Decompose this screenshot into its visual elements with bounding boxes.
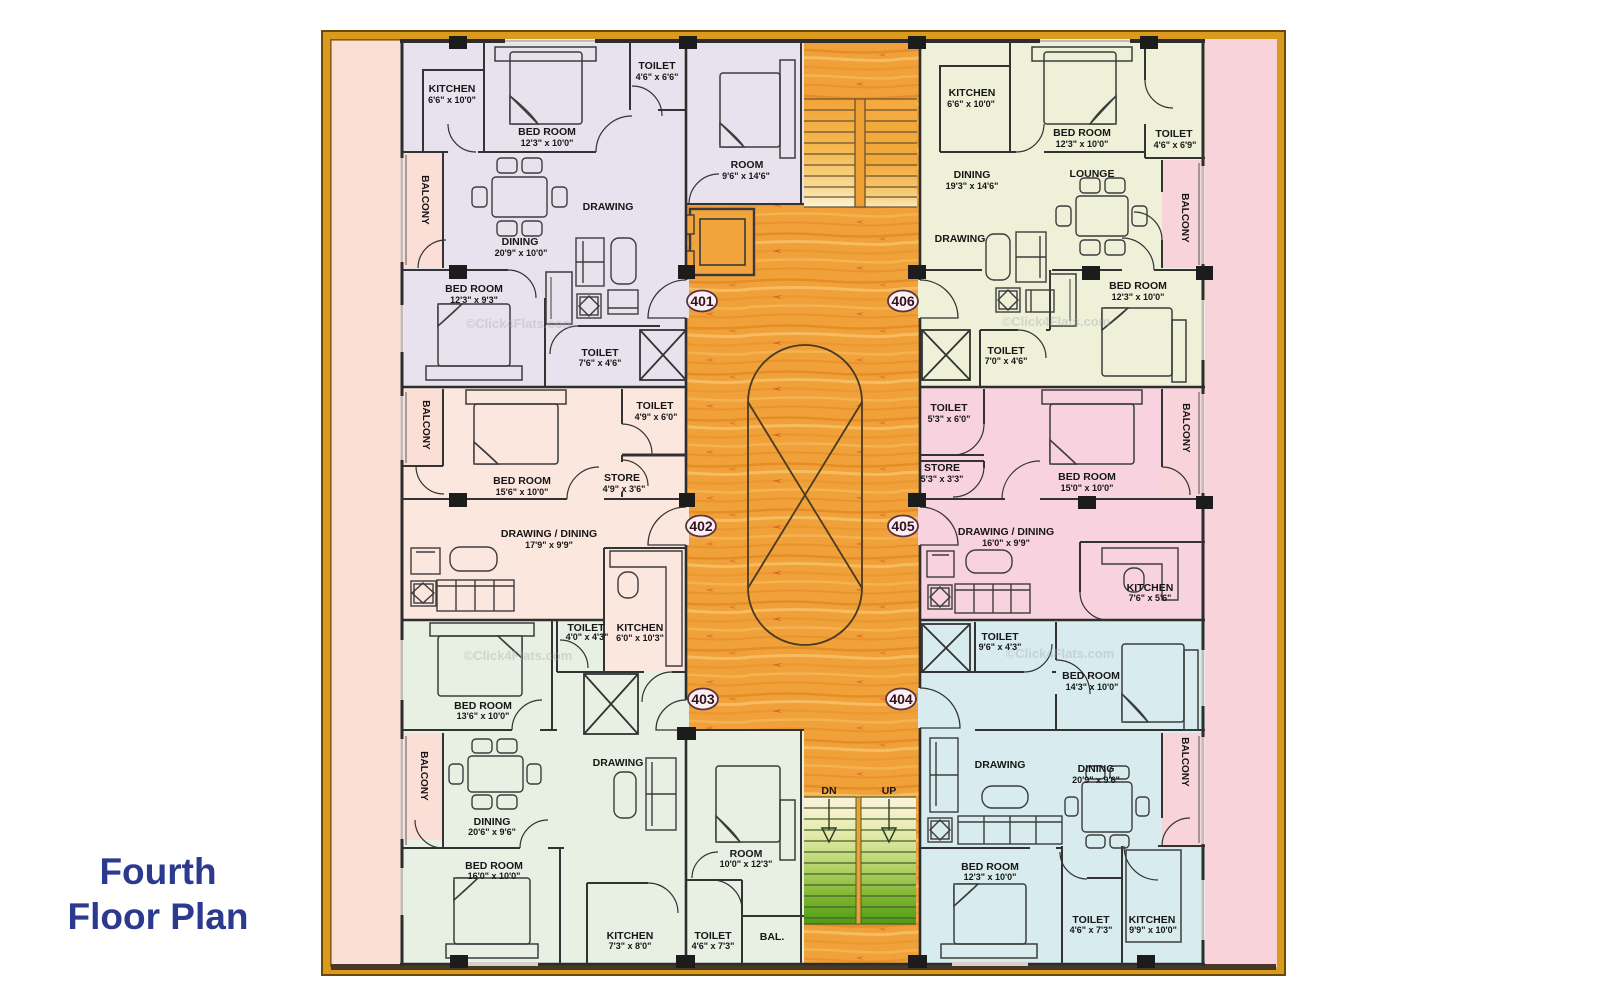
svg-text:7'6" x 5'6": 7'6" x 5'6" [1129,593,1172,603]
svg-text:4'6" x 6'6": 4'6" x 6'6" [636,72,679,82]
svg-text:20'9" x 9'6": 20'9" x 9'6" [1072,775,1120,785]
svg-text:12'3" x 9'3": 12'3" x 9'3" [450,295,498,305]
svg-text:6'0" x 10'3": 6'0" x 10'3" [616,633,664,643]
svg-text:405: 405 [891,518,915,534]
svg-text:DINING: DINING [502,236,539,248]
svg-text:7'0" x 4'6": 7'0" x 4'6" [985,356,1028,366]
svg-text:15'6" x 10'0": 15'6" x 10'0" [496,487,549,497]
svg-text:Floor Plan: Floor Plan [68,896,249,937]
svg-text:BED ROOM: BED ROOM [1053,127,1111,139]
svg-text:TOILET: TOILET [930,402,968,414]
svg-text:Fourth: Fourth [99,851,216,892]
svg-text:5'3" x 3'3": 5'3" x 3'3" [921,474,964,484]
svg-text:4'9" x 6'0": 4'9" x 6'0" [635,412,678,422]
svg-text:BED ROOM: BED ROOM [1058,471,1116,483]
svg-text:4'9" x 3'6": 4'9" x 3'6" [603,484,646,494]
svg-text:DINING: DINING [1078,763,1115,775]
svg-text:403: 403 [691,691,715,707]
svg-text:©Click4Flats.com: ©Click4Flats.com [464,648,573,663]
svg-text:STORE: STORE [924,462,960,474]
svg-text:DRAWING: DRAWING [583,201,634,213]
svg-text:BALCONY: BALCONY [419,175,430,225]
svg-text:DRAWING / DINING: DRAWING / DINING [958,526,1054,538]
svg-text:15'0" x 10'0": 15'0" x 10'0" [1061,483,1114,493]
svg-text:7'3" x 8'0": 7'3" x 8'0" [609,941,652,951]
svg-text:16'0" x 10'0": 16'0" x 10'0" [468,871,521,881]
svg-text:10'0" x 12'3": 10'0" x 12'3" [720,859,773,869]
svg-text:BED ROOM: BED ROOM [1062,670,1120,682]
svg-text:TOILET: TOILET [636,400,674,412]
svg-text:402: 402 [689,518,713,534]
svg-text:BED ROOM: BED ROOM [1109,280,1167,292]
svg-text:9'9" x 10'0": 9'9" x 10'0" [1129,925,1177,935]
svg-text:TOILET: TOILET [638,60,676,72]
svg-text:KITCHEN: KITCHEN [949,87,996,99]
svg-text:UP: UP [882,785,897,797]
svg-text:DRAWING: DRAWING [975,759,1026,771]
svg-text:4'0" x 4'3": 4'0" x 4'3" [566,632,609,642]
svg-text:TOILET: TOILET [1155,128,1193,140]
svg-text:401: 401 [690,293,714,309]
svg-text:12'3" x 10'0": 12'3" x 10'0" [1112,292,1165,302]
svg-text:BALCONY: BALCONY [1180,403,1191,453]
svg-text:20'9" x 10'0": 20'9" x 10'0" [495,248,548,258]
svg-text:STORE: STORE [604,472,640,484]
svg-text:19'3" x 14'6": 19'3" x 14'6" [946,181,999,191]
svg-text:©Click4Flats.com: ©Click4Flats.com [1006,646,1115,661]
svg-text:BALCONY: BALCONY [418,751,429,801]
svg-text:14'3" x 10'0": 14'3" x 10'0" [1066,682,1119,692]
svg-text:7'6" x 4'6": 7'6" x 4'6" [579,358,622,368]
svg-text:404: 404 [889,691,913,707]
svg-text:BED ROOM: BED ROOM [518,126,576,138]
svg-text:9'6" x 4'3": 9'6" x 4'3" [979,642,1022,652]
svg-text:DINING: DINING [954,169,991,181]
svg-text:12'3" x 10'0": 12'3" x 10'0" [521,138,574,148]
svg-text:6'6" x 10'0": 6'6" x 10'0" [428,95,476,105]
svg-text:LOUNGE: LOUNGE [1070,168,1115,180]
svg-text:©Click4Flats.com: ©Click4Flats.com [466,316,575,331]
svg-text:16'0" x 9'9": 16'0" x 9'9" [982,538,1030,548]
svg-text:406: 406 [891,293,915,309]
svg-text:BED ROOM: BED ROOM [493,475,551,487]
svg-text:DRAWING: DRAWING [593,757,644,769]
svg-text:BALCONY: BALCONY [1179,737,1190,787]
svg-text:12'3" x 10'0": 12'3" x 10'0" [1056,139,1109,149]
svg-text:4'6" x 6'9": 4'6" x 6'9" [1154,140,1197,150]
svg-text:12'3" x 10'0": 12'3" x 10'0" [964,872,1017,882]
svg-text:6'6" x 10'0": 6'6" x 10'0" [947,99,995,109]
svg-text:ROOM: ROOM [731,159,764,171]
svg-text:DRAWING: DRAWING [935,233,986,245]
svg-text:13'6" x 10'0": 13'6" x 10'0" [457,711,510,721]
svg-text:DN: DN [821,785,836,797]
svg-text:BAL.: BAL. [760,931,785,943]
svg-text:4'6" x 7'3": 4'6" x 7'3" [1070,925,1113,935]
svg-text:20'6" x 9'6": 20'6" x 9'6" [468,827,516,837]
svg-text:©Click4Flats.com: ©Click4Flats.com [1002,314,1111,329]
svg-text:KITCHEN: KITCHEN [429,83,476,95]
svg-text:5'3" x 6'0": 5'3" x 6'0" [928,414,971,424]
svg-text:BALCONY: BALCONY [420,400,431,450]
svg-text:17'9" x 9'9": 17'9" x 9'9" [525,540,573,550]
svg-text:BALCONY: BALCONY [1179,193,1190,243]
svg-text:9'6" x 14'6": 9'6" x 14'6" [722,171,770,181]
svg-text:DRAWING / DINING: DRAWING / DINING [501,528,597,540]
svg-text:BED ROOM: BED ROOM [445,283,503,295]
svg-text:4'6" x 7'3": 4'6" x 7'3" [692,941,735,951]
